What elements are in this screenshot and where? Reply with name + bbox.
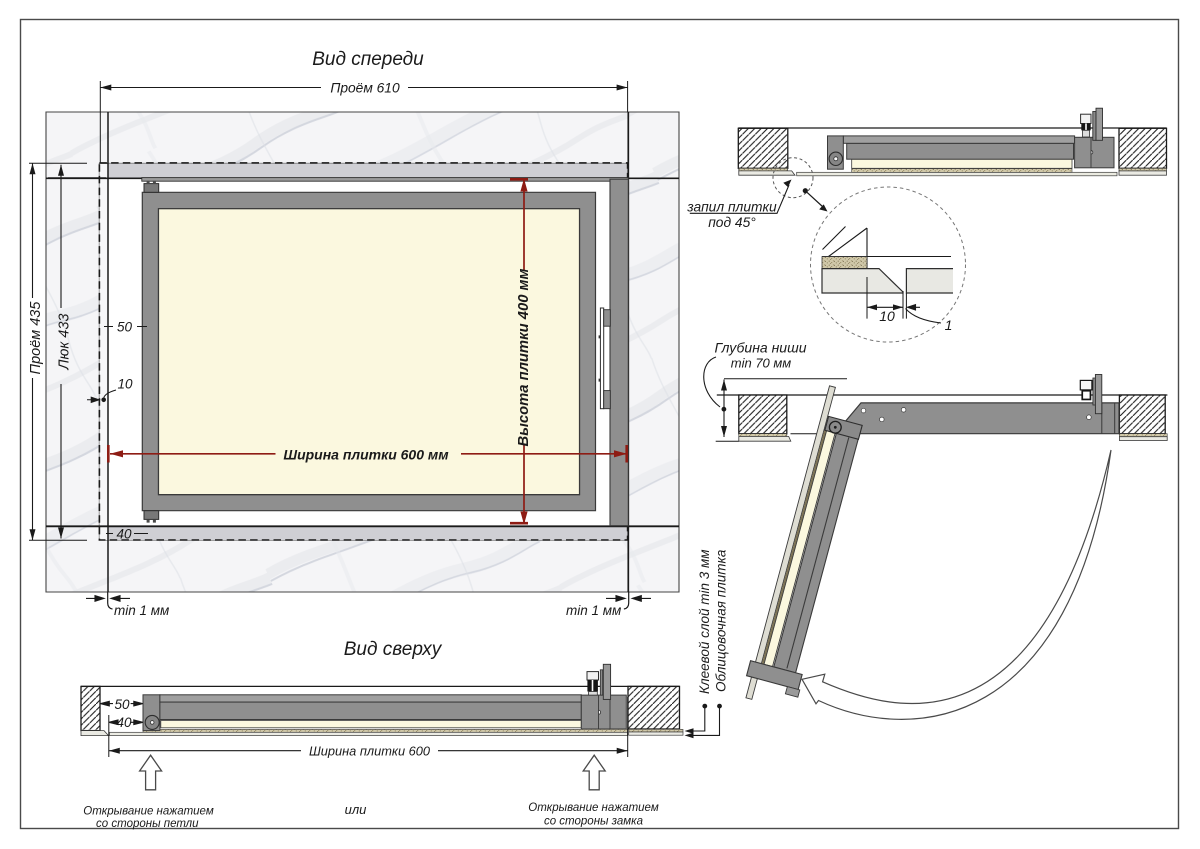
svg-text:10: 10 [879,308,895,324]
svg-text:min 1 мм: min 1 мм [114,603,169,618]
svg-text:Проём 435: Проём 435 [28,301,44,375]
svg-text:Облицовочная плитка: Облицовочная плитка [714,549,729,692]
svg-text:Ширина плитки 600: Ширина плитки 600 [309,744,431,759]
svg-text:Вид спереди: Вид спереди [312,49,424,70]
svg-text:Открывание нажатием: Открывание нажатием [83,806,214,818]
svg-text:со стороны замка: со стороны замка [544,816,643,828]
svg-text:запил плитки: запил плитки [686,200,777,215]
svg-text:50: 50 [114,697,130,712]
svg-text:Высота плитки 400 мм: Высота плитки 400 мм [516,269,532,447]
svg-text:Глубина ниши: Глубина ниши [715,340,807,356]
svg-text:или: или [345,802,367,817]
svg-text:Люк 433: Люк 433 [57,314,73,371]
svg-text:10: 10 [117,377,133,392]
svg-text:под 45°: под 45° [708,215,756,230]
svg-text:Вид сверху: Вид сверху [344,639,443,660]
svg-text:Ширина плитки 600 мм: Ширина плитки 600 мм [283,447,449,463]
svg-text:1: 1 [945,317,953,333]
svg-text:min 70 мм: min 70 мм [731,356,792,371]
svg-text:Клеевой слой min 3 мм: Клеевой слой min 3 мм [697,549,712,694]
svg-text:40: 40 [116,527,132,542]
svg-text:Проём 610: Проём 610 [330,81,400,96]
svg-text:50: 50 [117,320,133,335]
svg-text:Открывание нажатием: Открывание нажатием [528,802,659,814]
svg-text:40: 40 [116,715,132,730]
svg-text:min 1 мм: min 1 мм [566,603,621,618]
svg-text:со стороны петли: со стороны петли [96,818,199,830]
